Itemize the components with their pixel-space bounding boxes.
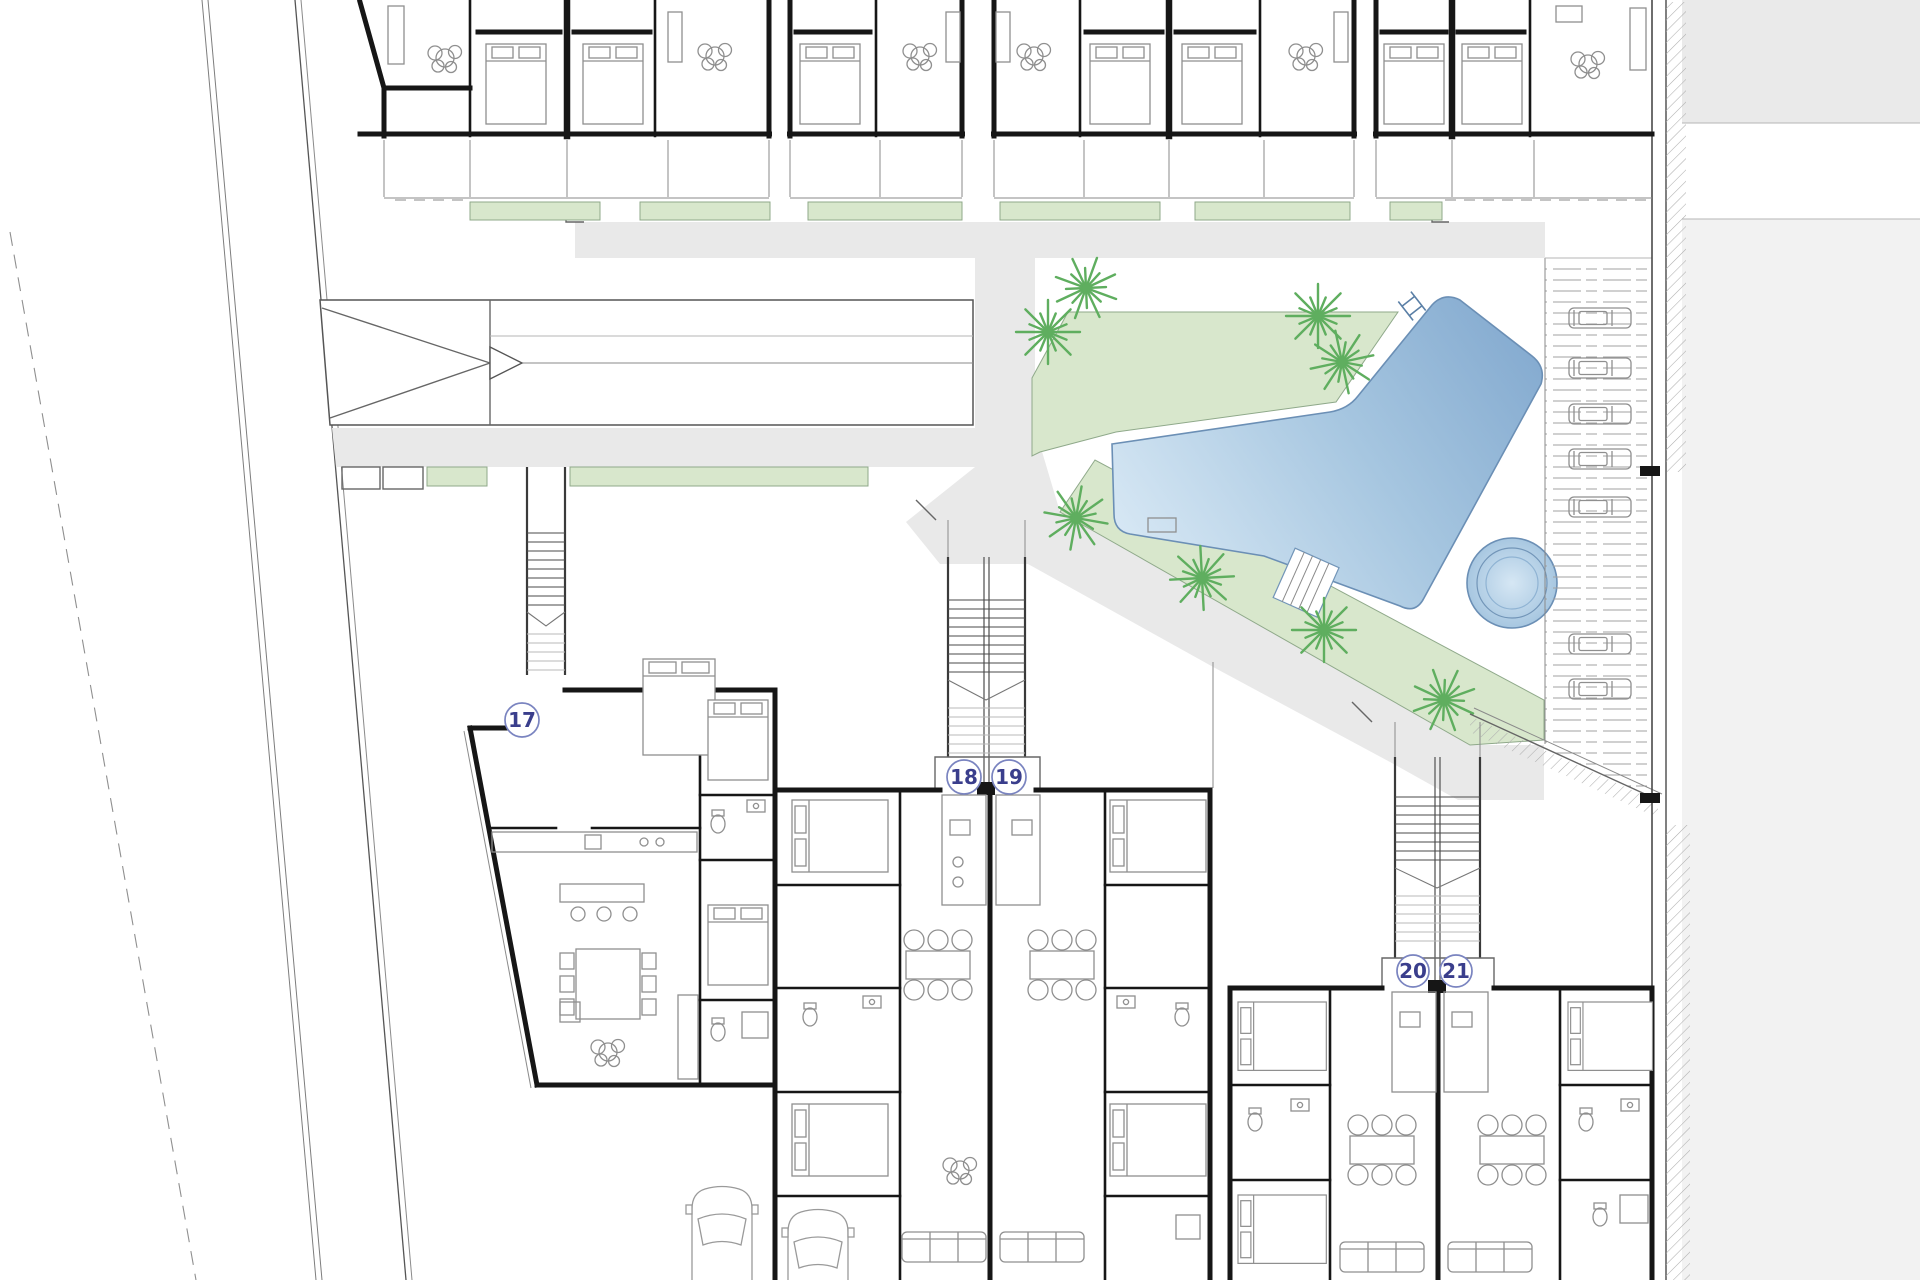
- site-boundary: [10, 0, 412, 1280]
- unit-label-19: 19: [992, 760, 1026, 794]
- unit-label-20: 20: [1397, 955, 1429, 987]
- unit-label-text: 21: [1442, 959, 1470, 983]
- garden-strip: [570, 467, 868, 486]
- toilet-icon: [711, 810, 725, 833]
- garden-strip: [1390, 202, 1442, 220]
- bed-icon: [792, 800, 888, 872]
- kitchen-counter: [1392, 992, 1436, 1092]
- kitchen-island: [560, 884, 644, 902]
- boundary-dashed-line: [10, 232, 196, 1280]
- storage-rooms: [342, 467, 423, 489]
- road-crossing: [1682, 123, 1920, 219]
- jacuzzi: [1467, 538, 1557, 628]
- palm-tree-icon: [1292, 598, 1356, 662]
- bed-icon: [1182, 44, 1242, 124]
- sofa-icon: [1000, 1232, 1084, 1262]
- sink-icon: [1012, 820, 1032, 835]
- shower-icon: [1620, 1195, 1648, 1223]
- sofa-icon: [678, 995, 698, 1079]
- bed-icon: [1462, 44, 1522, 124]
- palm-tree-icon: [1016, 300, 1080, 364]
- top-apartment-row: [360, 0, 1652, 200]
- right-road: [1682, 0, 1920, 1280]
- sink-icon: [1400, 1012, 1420, 1027]
- dining-table-icon: [1478, 1115, 1546, 1185]
- unit-label-text: 17: [508, 708, 536, 732]
- unit-label-text: 19: [995, 765, 1023, 789]
- toilet-icon: [1579, 1108, 1593, 1131]
- unit-label-17: 17: [505, 703, 539, 737]
- patio-walls: [384, 140, 1652, 198]
- shelf-icon: [668, 12, 682, 62]
- building-wall: [360, 2, 384, 88]
- car-icon: [686, 1187, 758, 1280]
- bed-icon: [1238, 1002, 1326, 1070]
- garden-strip: [808, 202, 962, 220]
- dining-table-icon: [1028, 930, 1096, 1000]
- hob-icon: [953, 857, 963, 867]
- upper-walkway: [575, 222, 1545, 258]
- wall-hatch: [1666, 825, 1690, 1280]
- boundary-line: [208, 0, 322, 1280]
- shower-icon: [742, 1012, 768, 1038]
- walkway-connector: [975, 258, 1035, 430]
- stool-icon: [623, 907, 637, 921]
- sink-icon: [1117, 996, 1135, 1008]
- dining-table-icon: [904, 930, 972, 1000]
- toilet-icon: [803, 1003, 817, 1026]
- bed-icon: [708, 700, 768, 780]
- bed-icon: [792, 1104, 888, 1176]
- car-icon: [782, 1210, 854, 1280]
- plant-icon: [1289, 44, 1323, 71]
- floor-plan-drawing: 17 18 19 20 21: [0, 0, 1920, 1280]
- bed-icon: [486, 44, 546, 124]
- bed-icon: [1384, 44, 1444, 124]
- boundary-line: [202, 0, 316, 1280]
- toilet-icon: [1593, 1203, 1607, 1226]
- site-plan-canvas: 17 18 19 20 21: [0, 0, 1920, 1280]
- stool-icon: [571, 907, 585, 921]
- sofa-icon: [1630, 8, 1646, 70]
- stool-icon: [597, 907, 611, 921]
- dining-table-icon: [1348, 1115, 1416, 1185]
- kitchen-counter: [942, 795, 986, 905]
- sofa-icon: [902, 1232, 986, 1262]
- garden-strip: [1195, 202, 1350, 220]
- garden-strip: [470, 202, 600, 220]
- palm-tree-icon: [1286, 284, 1350, 348]
- plant-icon: [943, 1158, 977, 1185]
- sofa-icon: [388, 6, 404, 64]
- bed-icon: [643, 659, 715, 755]
- wall-stub: [1640, 793, 1660, 803]
- washer-icon: [1176, 1215, 1200, 1239]
- plant-icon: [1017, 44, 1051, 71]
- road-upper-block: [1682, 0, 1920, 123]
- bed-icon: [708, 905, 768, 985]
- kitchen-counter: [1444, 992, 1488, 1092]
- bed-icon: [1090, 44, 1150, 124]
- pool-ladder-icon: [1398, 292, 1425, 321]
- plant-icon: [903, 44, 937, 71]
- sink-icon: [1621, 1099, 1639, 1111]
- building-gap: [772, 128, 787, 140]
- sofa-icon: [1448, 1242, 1532, 1272]
- bed-icon: [1110, 800, 1206, 872]
- shelf-icon: [996, 12, 1010, 62]
- sink-icon: [585, 835, 601, 849]
- unit-label-text: 20: [1399, 959, 1427, 983]
- unit-label-18: 18: [947, 760, 981, 794]
- plant-icon: [1571, 52, 1605, 79]
- wall-stub: [1640, 466, 1660, 476]
- plot-boundary-line: [295, 0, 406, 1280]
- bed-icon: [583, 44, 643, 124]
- staircase-17: [527, 467, 565, 675]
- garden-strip: [640, 202, 770, 220]
- toilet-icon: [1248, 1108, 1262, 1131]
- apartment-block-18-19: [775, 662, 1213, 1280]
- wall-hatch: [1666, 2, 1686, 472]
- sink-icon: [1452, 1012, 1472, 1027]
- garage-ramp: [320, 300, 973, 425]
- bed-icon: [1110, 1104, 1206, 1176]
- kitchen-counter: [996, 795, 1040, 905]
- sink-icon: [747, 800, 765, 812]
- sink-icon: [1291, 1099, 1309, 1111]
- plot-boundary-line: [301, 0, 412, 1280]
- bed-icon: [800, 44, 860, 124]
- bed-icon: [1238, 1195, 1326, 1263]
- apartment-block-20-21: [1230, 988, 1652, 1280]
- plant-icon: [591, 1040, 625, 1067]
- unit-label-21: 21: [1440, 955, 1472, 987]
- armchair-icon: [1556, 6, 1582, 22]
- sink-icon: [950, 820, 970, 835]
- sofa-icon: [1340, 1242, 1424, 1272]
- hob-icon: [656, 838, 664, 846]
- unit-label-text: 18: [950, 765, 978, 789]
- plant-icon: [428, 46, 462, 73]
- bed-icon: [1568, 1002, 1652, 1070]
- toilet-icon: [1175, 1003, 1189, 1026]
- hob-icon: [953, 877, 963, 887]
- sink-icon: [863, 996, 881, 1008]
- hob-icon: [640, 838, 648, 846]
- dining-table-icon: [560, 949, 656, 1019]
- lower-walkway: [332, 428, 975, 467]
- shelf-icon: [1334, 12, 1348, 62]
- building-gap: [965, 128, 991, 140]
- driveway-cars: [686, 1187, 854, 1280]
- plant-icon: [698, 44, 732, 71]
- shelf-icon: [946, 12, 960, 62]
- garden-strip: [427, 467, 487, 486]
- toilet-icon: [711, 1018, 725, 1041]
- garden-strip: [1000, 202, 1160, 220]
- storage-room: [342, 467, 380, 489]
- storage-room: [383, 467, 423, 489]
- parking-hatch: [1545, 256, 1652, 797]
- building-gap: [1357, 128, 1373, 140]
